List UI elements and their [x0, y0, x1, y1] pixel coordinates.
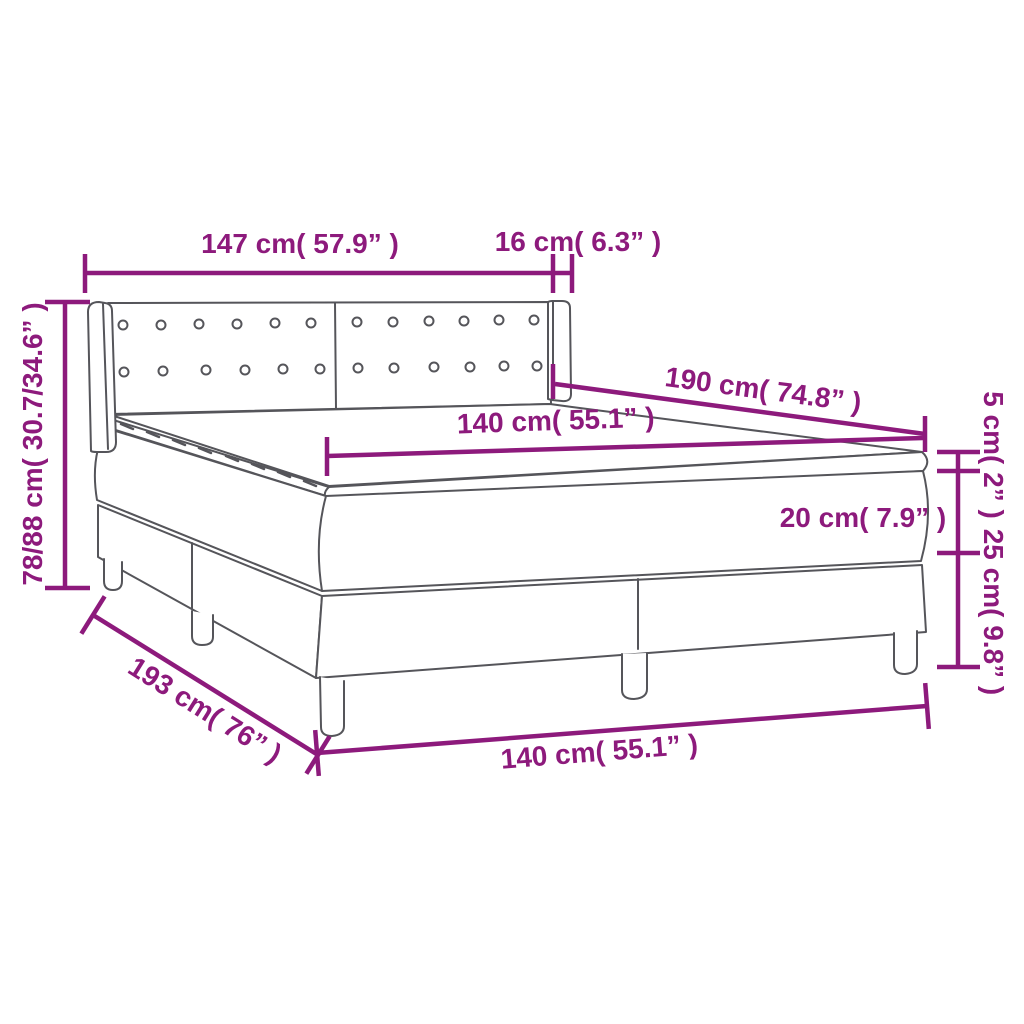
headboard-seam [335, 303, 336, 409]
label-side-wing-depth: 16 cm( 6.3” ) [495, 226, 662, 257]
label-base-height: 25 cm( 9.8” ) [978, 529, 1009, 696]
tick [81, 596, 104, 633]
label-topper-thickness: 5 cm( 2” ) [978, 391, 1009, 519]
leg [104, 559, 122, 590]
headboard-left-wing [88, 302, 116, 452]
tick [925, 683, 929, 729]
label-headboard-width: 147 cm( 57.9” ) [201, 228, 399, 259]
headboard-panel [108, 302, 551, 414]
leg [622, 653, 647, 699]
label-bed-length: 190 cm( 74.8” ) [663, 361, 863, 418]
label-mattress-thickness: 20 cm( 7.9” ) [780, 502, 947, 533]
leg [192, 611, 213, 645]
tick [315, 730, 319, 776]
label-headboard-height: 78/88 cm( 30.7/34.6” ) [17, 302, 48, 585]
leg [320, 677, 344, 736]
label-base-length: 193 cm( 76” ) [123, 651, 287, 770]
dimension-diagram: 147 cm( 57.9” ) 16 cm( 6.3” ) 190 cm( 74… [0, 0, 1024, 1024]
leg [894, 631, 917, 674]
